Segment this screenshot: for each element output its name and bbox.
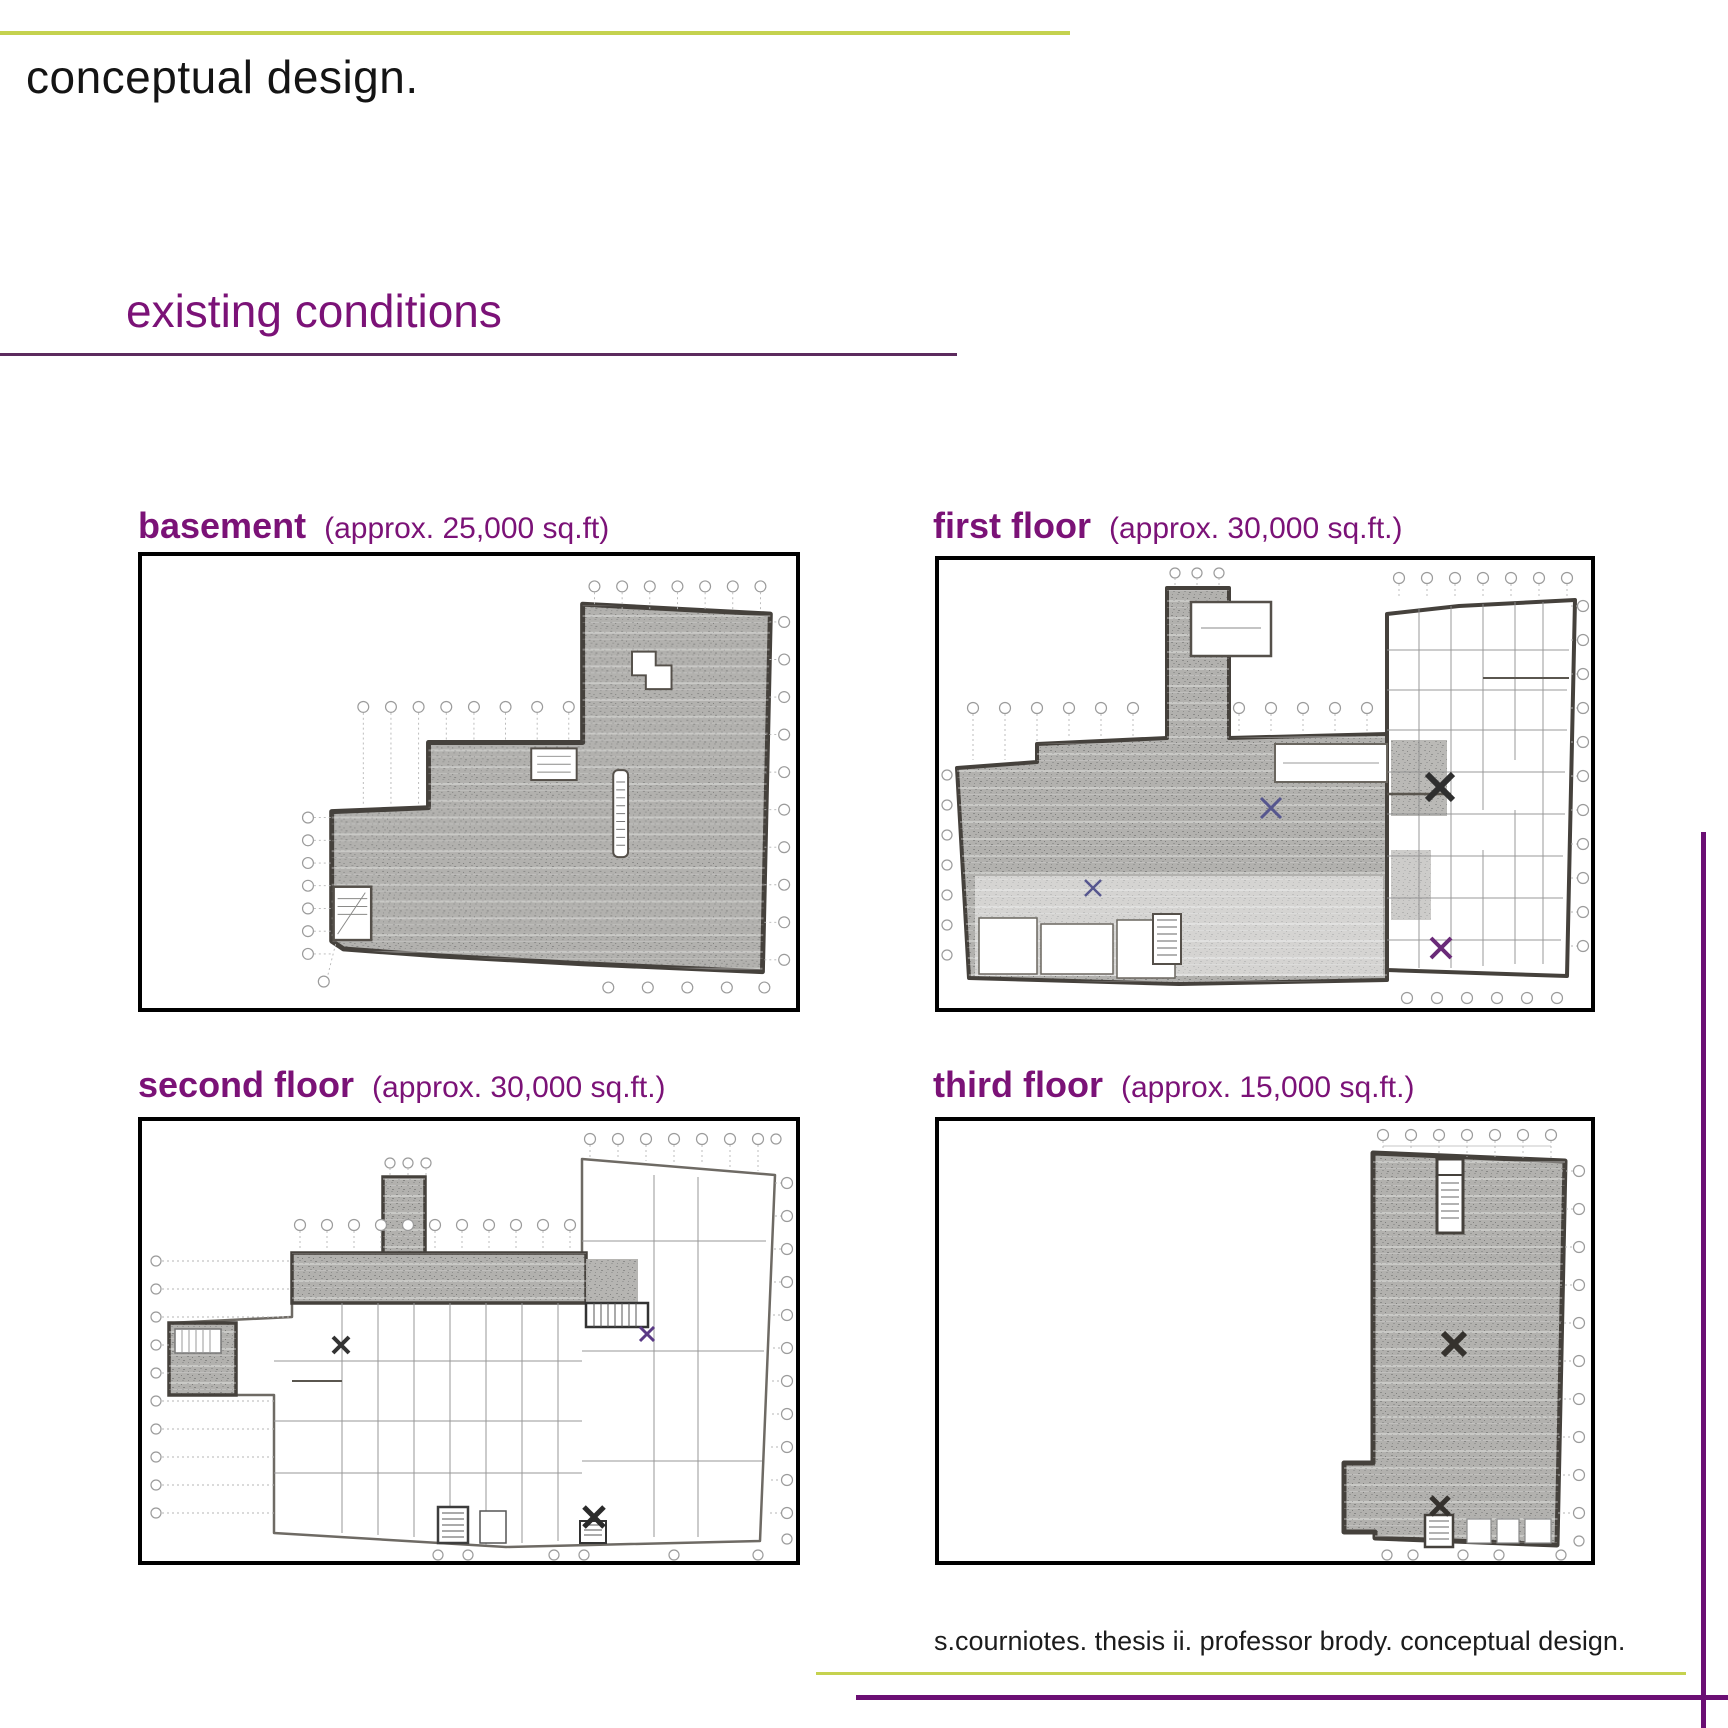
basement-plan-drawing — [142, 556, 796, 1008]
bottom-green-rule — [816, 1672, 1686, 1675]
third-floor-area: (approx. 15,000 sq.ft.) — [1121, 1071, 1415, 1105]
second-floor-plan-drawing — [142, 1121, 796, 1561]
heading-underline — [0, 353, 957, 356]
section-heading: existing conditions — [126, 284, 502, 338]
second-floor-label: second floor (approx. 30,000 sq.ft.) — [138, 1064, 666, 1106]
third-floor-plan-frame — [935, 1117, 1595, 1565]
first-floor-name: first floor — [933, 505, 1091, 547]
first-floor-plan-frame — [935, 556, 1595, 1012]
basement-label: basement (approx. 25,000 sq.ft) — [138, 505, 609, 547]
third-floor-label: third floor (approx. 15,000 sq.ft.) — [933, 1064, 1414, 1106]
top-green-rule — [0, 31, 1070, 35]
second-floor-boundary — [169, 1159, 775, 1547]
second-floor-name: second floor — [138, 1064, 354, 1106]
third-floor-name: third floor — [933, 1064, 1103, 1106]
basement-area: (approx. 25,000 sq.ft) — [324, 512, 609, 546]
third-floor-plan-drawing — [939, 1121, 1591, 1561]
bottom-purple-rule — [856, 1695, 1728, 1700]
first-floor-right-wing — [1387, 600, 1575, 976]
basement-name: basement — [138, 505, 306, 547]
first-floor-label: first floor (approx. 30,000 sq.ft.) — [933, 505, 1403, 547]
first-floor-plan-drawing — [939, 560, 1591, 1008]
first-floor-area: (approx. 30,000 sq.ft.) — [1109, 512, 1403, 546]
basement-footprint — [332, 604, 771, 972]
second-floor-area: (approx. 30,000 sq.ft.) — [372, 1071, 666, 1105]
slide-title: conceptual design. — [26, 50, 419, 104]
basement-plan-frame — [138, 552, 800, 1012]
right-purple-rule — [1701, 832, 1706, 1728]
footer-credit: s.courniotes. thesis ii. professor brody… — [934, 1626, 1625, 1657]
second-floor-plan-frame — [138, 1117, 800, 1565]
